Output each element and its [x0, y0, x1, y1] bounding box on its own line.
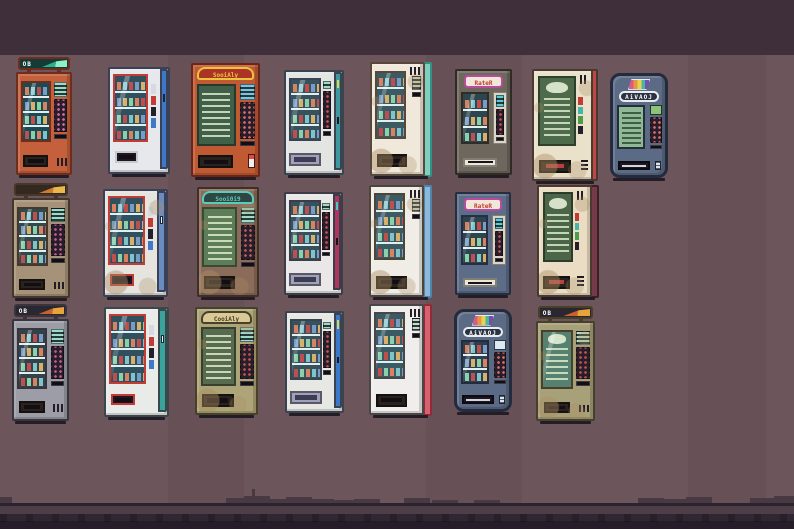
sticker — [336, 202, 339, 210]
lcd-menu-screen — [617, 105, 645, 150]
product-shelf — [376, 363, 403, 377]
machine-base — [458, 295, 507, 298]
bottle-row — [294, 325, 298, 333]
machine-body — [370, 62, 425, 176]
vent-grill — [53, 404, 64, 412]
speaker-grill — [577, 276, 583, 287]
product-shelf — [377, 73, 404, 90]
machine-base — [540, 421, 592, 424]
vent-grill — [410, 309, 420, 316]
vending-machine-r1c7 — [532, 69, 598, 184]
sign-swoosh-decoration — [39, 186, 65, 193]
card-reader — [163, 94, 166, 102]
menu-poster — [543, 192, 574, 261]
product-shelf — [463, 249, 487, 263]
product-shelf — [291, 80, 319, 95]
dispenser-opening — [382, 159, 402, 164]
display-screen — [650, 105, 662, 115]
menu-poster — [538, 76, 575, 145]
button-column — [149, 325, 154, 370]
vent-grill — [410, 190, 420, 198]
coin-slot — [241, 262, 254, 267]
card-reader — [160, 216, 163, 224]
display-screen — [241, 207, 254, 223]
bottle-row — [21, 226, 25, 234]
dispenser-flap — [618, 161, 650, 170]
product-window — [109, 314, 146, 384]
product-shelf — [376, 212, 403, 228]
coin-slot — [412, 333, 420, 338]
bottle-row — [25, 102, 29, 110]
display-screen — [240, 84, 255, 100]
dispenser-flap — [23, 155, 48, 167]
machine-base — [374, 176, 429, 179]
vending-machine-r3c2 — [104, 307, 169, 420]
brand-sign-label: OB — [20, 59, 69, 69]
mascot-sticker — [248, 154, 255, 168]
side-panel — [158, 309, 167, 412]
skyline-tower — [252, 489, 255, 499]
bottle-row — [293, 84, 297, 92]
brand-sign: CooiAly — [201, 311, 253, 324]
bottle-row — [465, 100, 469, 108]
menu-text-rows — [622, 112, 641, 144]
product-shelf — [291, 232, 319, 247]
keypad — [496, 109, 504, 135]
dispenser-opening — [119, 155, 134, 159]
button — [149, 360, 154, 370]
bottle-row — [293, 206, 297, 214]
product-shelf — [292, 365, 320, 378]
product-shelf — [376, 330, 403, 346]
bottle-row — [113, 373, 117, 381]
display-screen — [494, 340, 506, 350]
product-shelf — [115, 93, 146, 110]
background-stripe — [688, 55, 766, 503]
bottle-row — [21, 348, 25, 356]
machine-body — [532, 69, 598, 181]
brand-sign: RateR — [464, 198, 503, 211]
dispenser-opening — [294, 157, 316, 162]
button — [149, 325, 154, 335]
bottle-row — [293, 221, 297, 229]
bottle-row — [378, 249, 382, 257]
machine-body: Sooi0i9 — [197, 187, 259, 297]
vent-grill — [580, 75, 588, 84]
product-shelf — [110, 215, 143, 232]
keypad — [323, 331, 331, 368]
coin-slot — [51, 381, 64, 386]
mid-ground-band — [0, 506, 794, 514]
side-panel — [423, 62, 432, 177]
bottle-row — [465, 345, 469, 353]
side-panel — [334, 72, 342, 170]
dispenser-opening — [294, 277, 316, 282]
button — [578, 126, 583, 134]
product-shelf — [291, 217, 319, 232]
product-shelf — [291, 202, 319, 217]
machine-body — [12, 319, 69, 421]
machine-body — [16, 72, 72, 175]
bottle-row — [21, 241, 25, 249]
menu-display — [202, 207, 237, 267]
product-shelf — [291, 110, 319, 125]
bottle-row — [21, 334, 25, 342]
product-window — [113, 74, 148, 142]
dispenser-opening — [204, 160, 228, 165]
keypad — [51, 346, 64, 379]
bottle-row — [379, 78, 383, 86]
button — [575, 213, 579, 221]
coin-slot — [576, 381, 590, 386]
machine-base — [107, 297, 164, 300]
product-shelf — [376, 228, 403, 244]
dispenser-flap — [204, 276, 235, 289]
coin-slot — [240, 381, 254, 386]
product-shelf — [19, 345, 45, 360]
brand-sign: OB — [18, 57, 71, 70]
bottle-row — [378, 217, 382, 225]
machine-base — [19, 175, 68, 178]
product-shelf — [463, 370, 487, 382]
product-window — [461, 215, 489, 265]
machine-base — [288, 175, 341, 178]
machine-body: AiVAOJ — [610, 73, 668, 178]
coin-slot — [412, 214, 420, 219]
brand-sign-label: RateR — [466, 77, 501, 88]
control-panel — [241, 207, 254, 267]
dispenser-flap — [376, 276, 407, 289]
brand-sign-label: RateR — [466, 200, 501, 211]
dispenser-opening — [28, 159, 44, 163]
control-panel — [412, 318, 420, 369]
product-window — [290, 319, 322, 380]
vending-machine-r3c7: OB — [536, 306, 595, 424]
coin-slot — [412, 92, 420, 97]
brand-sign: AiVAOJ — [618, 79, 661, 102]
machine-body: RateR — [455, 192, 511, 295]
dispenser-opening — [381, 280, 401, 284]
machine-base — [112, 174, 167, 177]
button-column — [578, 97, 583, 134]
vent-grill — [57, 158, 67, 166]
machine-body: RateR — [455, 69, 512, 175]
control-panel — [54, 82, 67, 139]
dispenser-flap — [202, 394, 234, 406]
menu-display — [201, 327, 236, 386]
control-panel — [322, 203, 330, 256]
button — [575, 232, 579, 240]
bottle-row — [21, 363, 25, 371]
dispenser-flap — [544, 402, 570, 414]
machine-base — [15, 421, 65, 424]
display-screen — [495, 218, 503, 230]
product-shelf — [19, 209, 46, 223]
bottle-row — [465, 359, 469, 367]
vending-machine-r2c6: RateR — [455, 192, 511, 298]
vending-machine-r1c6: RateR — [455, 69, 512, 178]
bottle-row — [117, 98, 121, 106]
product-window — [17, 207, 48, 267]
dispenser-opening — [207, 398, 228, 402]
machine-base — [199, 415, 254, 418]
machine-base — [458, 175, 508, 178]
machine-base — [15, 298, 66, 301]
product-shelf — [115, 76, 146, 93]
control-panel — [323, 81, 331, 136]
vending-machine-r2c1 — [12, 183, 70, 301]
product-shelf — [23, 127, 49, 140]
product-shelf — [19, 237, 46, 251]
dispenser-opening — [548, 406, 565, 410]
machine-body — [12, 198, 70, 298]
bottle-row — [112, 237, 116, 245]
product-shelf — [23, 83, 49, 98]
dispenser-flap — [115, 151, 138, 162]
product-shelf — [463, 233, 487, 249]
vent-grill — [577, 191, 584, 200]
side-panel — [160, 69, 168, 169]
bottle-row — [378, 233, 382, 241]
product-shelf — [19, 252, 46, 264]
bottle-row — [465, 254, 469, 262]
bottle-row — [293, 130, 297, 138]
bottle-row — [117, 131, 121, 139]
keypad — [650, 117, 662, 144]
product-shelf — [111, 367, 144, 382]
button — [149, 337, 154, 347]
button — [578, 97, 583, 105]
bottle-row — [465, 373, 469, 381]
product-shelf — [376, 347, 403, 363]
bottle-row — [378, 352, 382, 360]
card-reader — [161, 335, 164, 343]
bottle-row — [117, 82, 121, 90]
machine-body: CooiAly — [195, 307, 258, 415]
vending-machine-r1c3: SooiAly — [191, 63, 260, 180]
product-shelf — [291, 95, 319, 110]
brand-sign: OB — [14, 304, 68, 317]
product-shelf — [115, 126, 146, 141]
coin-slot — [495, 258, 503, 262]
bottle-row — [25, 116, 29, 124]
brand-sign-label: Sooi0i9 — [204, 193, 251, 204]
dispenser-flap — [462, 395, 494, 404]
dispenser-flap — [19, 401, 44, 413]
product-shelf — [292, 321, 320, 336]
vending-machine-r3c4 — [285, 311, 344, 416]
machine-base — [457, 412, 508, 415]
control-panel — [650, 105, 662, 150]
control-panel — [412, 76, 420, 129]
vent-grill — [410, 67, 420, 75]
coin-slot — [494, 380, 506, 384]
bottle-row — [379, 111, 383, 119]
bottle-row — [113, 322, 117, 330]
button — [148, 241, 153, 250]
keypad — [241, 225, 254, 260]
dispenser-flap — [289, 273, 320, 286]
display-screen — [322, 203, 330, 210]
product-shelf — [111, 350, 144, 367]
product-shelf — [292, 350, 320, 365]
bill-slot — [337, 357, 339, 363]
control-panel — [240, 84, 255, 147]
control-panel — [494, 340, 506, 384]
bottle-row — [294, 339, 298, 347]
display-screen — [412, 199, 420, 212]
product-shelf — [23, 98, 49, 113]
keypad — [240, 344, 254, 379]
keypad — [323, 91, 331, 129]
button — [149, 348, 154, 358]
side-panel — [423, 304, 432, 416]
coin-slot — [323, 131, 331, 136]
machine-base — [541, 297, 596, 300]
menu-text-rows — [202, 93, 230, 140]
product-window — [374, 193, 405, 260]
control-panel — [492, 215, 506, 265]
vent-grill — [54, 282, 65, 290]
dispenser-flap — [377, 154, 407, 167]
dispenser-opening — [381, 398, 401, 402]
button — [151, 118, 156, 127]
rainbow-logo — [628, 79, 650, 90]
control-panel — [240, 327, 254, 386]
brand-sign-label — [16, 185, 67, 186]
product-shelf — [376, 195, 403, 211]
ground-dark-strip — [0, 522, 794, 529]
dispenser-flap — [19, 279, 45, 291]
display-screen — [496, 95, 504, 107]
button-column — [148, 207, 153, 251]
brand-sign-label: SooiAly — [199, 69, 252, 80]
bottle-row — [465, 222, 469, 230]
machine-body — [537, 185, 592, 297]
dispenser-opening — [114, 278, 130, 282]
product-shelf — [19, 330, 45, 345]
dispenser-flap — [110, 274, 134, 285]
display-screen — [51, 329, 64, 344]
product-shelf — [111, 316, 144, 333]
product-shelf — [19, 359, 45, 374]
machine-base — [289, 413, 341, 416]
brand-sign: Sooi0i9 — [202, 191, 253, 204]
machine-base — [201, 297, 256, 300]
product-shelf — [463, 217, 487, 233]
machine-body — [284, 192, 343, 295]
machine-base — [373, 415, 428, 418]
button-column — [151, 84, 156, 127]
bottle-row — [465, 117, 469, 125]
dispenser-opening — [295, 395, 317, 400]
vending-machine-r2c4 — [284, 192, 343, 298]
vending-machine-r1c8: AiVAOJ — [610, 73, 668, 181]
bottle-row — [21, 212, 25, 220]
dispenser-opening — [24, 283, 41, 287]
dispenser-opening — [115, 398, 131, 402]
machine-base — [613, 178, 664, 181]
dispenser-tray — [622, 165, 646, 167]
product-shelf — [377, 89, 404, 106]
coin-slot — [51, 258, 65, 263]
product-shelf — [19, 223, 46, 237]
side-panel — [334, 313, 342, 408]
bottle-row — [293, 250, 297, 258]
product-shelf — [23, 113, 49, 128]
bottle-row — [294, 369, 298, 377]
machine-body — [103, 189, 168, 297]
product-shelf — [115, 109, 146, 126]
dispenser-opening — [546, 164, 564, 168]
brand-sign: AiVAOJ — [462, 315, 505, 337]
product-shelf — [377, 106, 404, 123]
display-screen — [51, 208, 65, 222]
product-shelf — [376, 244, 403, 258]
vending-machine-r2c2 — [103, 189, 168, 300]
dispenser-flap — [198, 155, 233, 168]
machine-body — [369, 185, 424, 297]
speaker-grill — [581, 160, 588, 171]
vending-machine-r2c7 — [537, 185, 599, 300]
menu-text-rows — [206, 335, 231, 379]
product-window — [374, 312, 405, 378]
bottle-row — [294, 354, 298, 362]
display-screen — [576, 331, 590, 345]
button — [575, 242, 579, 250]
sticker — [337, 80, 340, 88]
bottle-row — [112, 221, 116, 229]
bottle-row — [379, 128, 383, 136]
coin-slot — [650, 145, 662, 149]
display-screen — [412, 318, 420, 331]
display-screen — [323, 322, 331, 329]
product-window — [17, 328, 47, 389]
control-panel — [493, 92, 507, 144]
bottle-row — [21, 255, 25, 263]
button-column — [575, 213, 579, 250]
brand-sign-label: OB — [16, 306, 66, 316]
bottle-row — [378, 319, 382, 327]
product-shelf — [291, 246, 319, 259]
vending-machine-r1c4 — [284, 70, 344, 178]
brand-sign: OB — [538, 306, 593, 319]
button — [151, 96, 156, 105]
product-window — [289, 78, 321, 141]
bottle-row — [293, 115, 297, 123]
button — [151, 107, 156, 116]
dispenser-opening — [468, 161, 493, 163]
product-shelf — [110, 232, 143, 249]
menu-display — [197, 84, 236, 147]
brand-sign-label: AiVAOJ — [463, 327, 504, 338]
product-window — [289, 200, 321, 261]
brand-sign-label: AiVAOJ — [619, 91, 660, 102]
bottle-row — [25, 131, 29, 139]
rainbow-logo — [472, 315, 494, 326]
vending-machine-r1c5 — [370, 62, 432, 179]
machine-base — [288, 295, 340, 298]
product-shelf — [291, 126, 319, 139]
sprite-sheet-canvas: OB — [0, 0, 794, 529]
control-panel — [576, 331, 590, 387]
display-screen — [54, 82, 67, 97]
poster-logo — [549, 198, 567, 209]
coin-slot — [496, 137, 504, 141]
brand-sign-label: OB — [540, 308, 591, 318]
top-dark-band — [0, 0, 794, 55]
change-box — [499, 395, 505, 404]
